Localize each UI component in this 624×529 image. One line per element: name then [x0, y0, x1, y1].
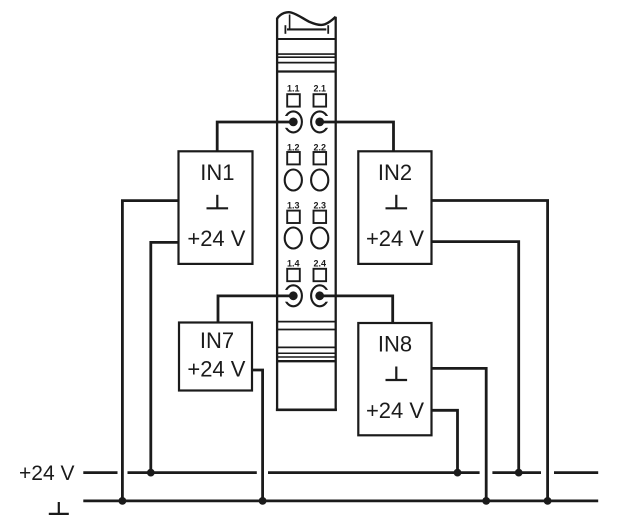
svg-text:1.4: 1.4	[287, 258, 300, 268]
svg-text:IN2: IN2	[378, 160, 412, 185]
svg-text:+24 V: +24 V	[366, 398, 424, 423]
svg-text:+24 V: +24 V	[19, 462, 74, 485]
svg-text:IN7: IN7	[200, 328, 234, 353]
svg-text:2.4: 2.4	[313, 258, 326, 268]
svg-text:IN8: IN8	[378, 332, 412, 357]
svg-text:1.3: 1.3	[287, 201, 300, 211]
svg-text:2.1: 2.1	[313, 84, 326, 94]
svg-text:+24 V: +24 V	[366, 226, 424, 251]
svg-text:1.2: 1.2	[287, 142, 300, 152]
svg-text:IN1: IN1	[200, 160, 234, 185]
svg-text:+24 V: +24 V	[187, 357, 245, 382]
svg-text:2.2: 2.2	[313, 142, 326, 152]
svg-text:1.1: 1.1	[287, 84, 300, 94]
svg-text:2.3: 2.3	[313, 201, 326, 211]
svg-text:+24 V: +24 V	[187, 226, 245, 251]
